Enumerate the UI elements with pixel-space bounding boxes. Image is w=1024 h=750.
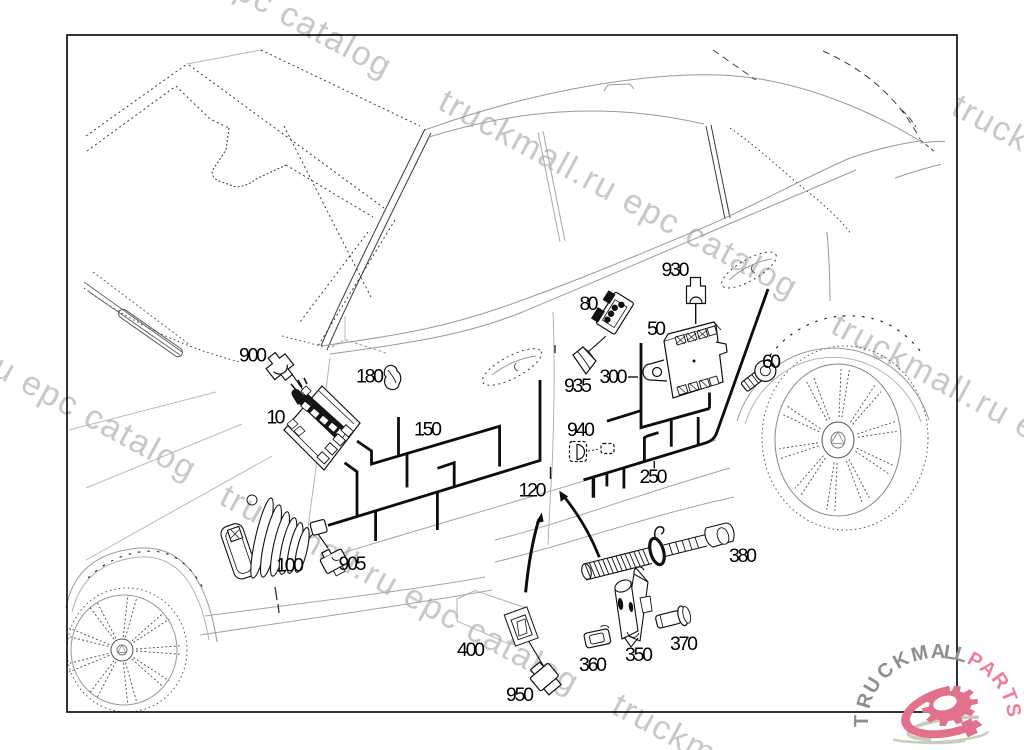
- svg-text:250: 250: [640, 466, 668, 488]
- svg-text:370: 370: [670, 633, 698, 655]
- svg-text:360: 360: [579, 654, 607, 676]
- svg-text:950: 950: [506, 684, 534, 706]
- svg-text:120: 120: [519, 480, 547, 502]
- svg-text:930: 930: [662, 259, 690, 281]
- svg-text:300: 300: [600, 366, 628, 388]
- svg-text:900: 900: [239, 345, 267, 367]
- svg-text:60: 60: [762, 351, 781, 373]
- svg-text:150: 150: [414, 419, 442, 441]
- svg-text:380: 380: [729, 545, 757, 567]
- svg-text:905: 905: [339, 553, 367, 575]
- svg-text:80: 80: [580, 293, 599, 315]
- svg-text:350: 350: [625, 644, 653, 666]
- svg-text:50: 50: [647, 318, 666, 340]
- svg-text:100: 100: [276, 555, 304, 577]
- svg-text:180: 180: [356, 366, 384, 388]
- svg-text:940: 940: [567, 419, 595, 441]
- svg-text:400: 400: [457, 639, 485, 661]
- svg-text:10: 10: [267, 407, 286, 429]
- svg-text:935: 935: [564, 375, 592, 397]
- svg-text:T: T: [851, 715, 873, 727]
